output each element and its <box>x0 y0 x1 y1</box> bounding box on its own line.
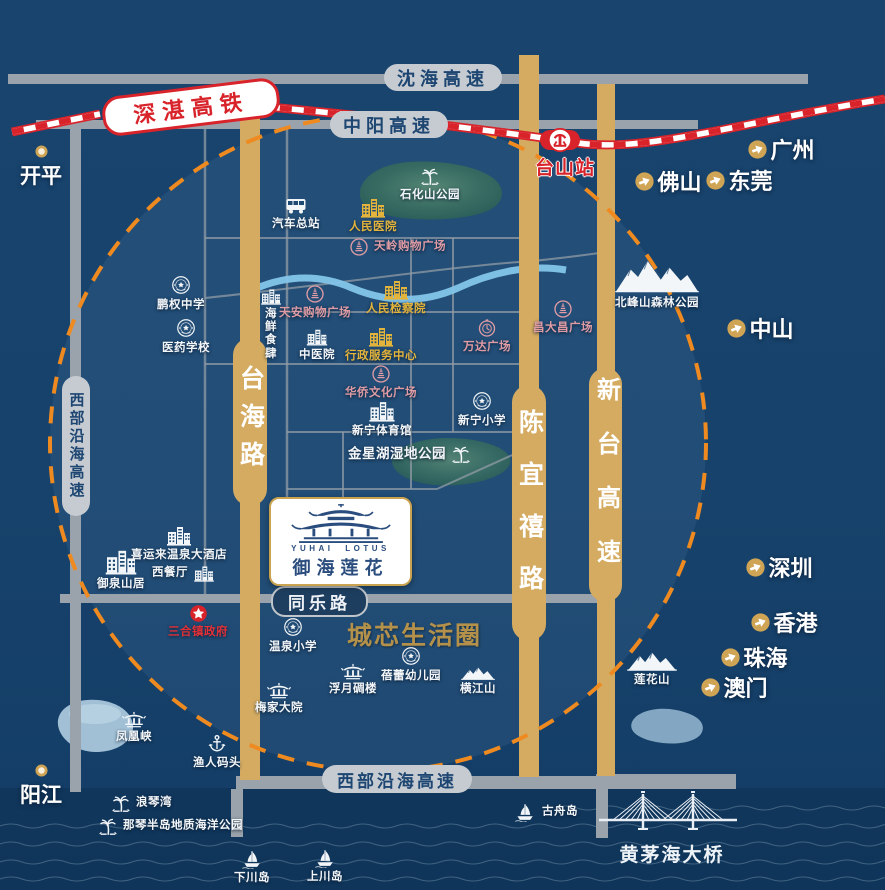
mall-icon <box>349 237 369 257</box>
poi-label: 西餐厅 <box>152 566 188 579</box>
sea-area <box>0 788 885 890</box>
poi-label: 那琴半岛地质海洋公园 <box>123 819 243 832</box>
arrow-circle-icon <box>635 172 654 191</box>
building-icon <box>260 287 282 305</box>
sailboat-icon <box>240 850 264 869</box>
poi-label: 新宁体育馆 <box>352 425 412 438</box>
poi-label: 横江山 <box>460 683 496 696</box>
arrow-circle-icon <box>701 678 720 697</box>
poi-label: 中医院 <box>299 349 335 362</box>
bridge-label: 黄茅海大桥 <box>607 840 737 867</box>
poi-label: 人民医院 <box>349 221 397 234</box>
seal-icon <box>282 616 304 638</box>
road-label-text: 西部沿海高速 <box>66 392 87 500</box>
mountain-icon <box>461 665 495 680</box>
city-label: 开平 <box>20 160 62 190</box>
poi-label: 天岭购物广场 <box>374 240 446 253</box>
poi-label: 上川岛 <box>307 871 343 884</box>
poi-label: 北峰山森林公园 <box>615 297 699 310</box>
poi-label: 医药学校 <box>162 342 210 355</box>
location-map: 沈海高速 中阳高速 西部沿海高速 同乐路 西部沿海高速 台海路 陈宜禧路 新台高… <box>0 0 885 890</box>
arrow-circle-icon <box>706 171 725 190</box>
mall-icon <box>371 364 391 384</box>
poi-label: 莲花山 <box>634 674 670 687</box>
bus-icon <box>285 196 307 215</box>
sea-waves <box>0 806 885 881</box>
poi-label: 行政服务中心 <box>345 350 417 363</box>
mountain-lg-icon <box>613 258 701 294</box>
city-label: 深圳 <box>769 551 813 583</box>
poi-label: 下川岛 <box>234 872 270 885</box>
road-label-taihai: 台海路 <box>233 338 267 506</box>
seal-icon <box>400 645 422 667</box>
mountain-icon <box>626 649 678 671</box>
building-icon <box>368 399 396 422</box>
poi-label: 古舟岛 <box>542 805 578 818</box>
pagoda-icon <box>122 711 146 728</box>
poi-label: 人民检察院 <box>366 303 426 316</box>
seal-icon <box>471 390 493 412</box>
poi-label: 海鲜 食肆 <box>265 308 277 361</box>
road-label-text: 新台高速 <box>594 377 618 593</box>
ring-marker-icon <box>35 764 48 777</box>
station-label: 台山站 <box>534 153 596 180</box>
poi-label: 凤凰峡 <box>116 731 152 744</box>
building-icon <box>306 327 328 346</box>
arrow-circle-icon <box>748 140 767 159</box>
poi-label: 御泉山居 <box>97 578 145 591</box>
poi-label: 浮月碉楼 <box>329 683 377 696</box>
pagoda-icon <box>267 682 291 699</box>
sailboat-icon <box>313 849 337 868</box>
poi-label: 温泉小学 <box>269 641 317 654</box>
china-railway-icon <box>547 127 573 153</box>
building-icon <box>383 278 409 300</box>
city-label: 东莞 <box>729 164 773 196</box>
road-label-chenyixi: 陈宜禧路 <box>512 385 546 641</box>
poi-label: 天安购物广场 <box>279 307 351 320</box>
building-icon <box>193 564 215 582</box>
city-label: 珠海 <box>744 641 788 673</box>
road-label-text: 陈宜禧路 <box>517 409 542 617</box>
seal-icon <box>170 274 192 296</box>
poi-label: 万达广场 <box>463 341 511 354</box>
city-label: 佛山 <box>658 165 702 197</box>
road-stub-bridge <box>596 774 736 785</box>
arrow-circle-icon <box>721 648 740 667</box>
building-icon <box>360 196 386 218</box>
huangmaohai-bridge-icon <box>597 789 739 837</box>
poi-label: 渔人码头 <box>193 757 241 770</box>
arrow-circle-icon <box>727 319 746 338</box>
poi-label: 浪琴湾 <box>136 796 172 809</box>
poi-label: 金星湖湿地公园 <box>348 446 446 462</box>
project-logo-card: YUHAI LOTUS 御海莲花 <box>269 497 412 586</box>
poi-label: 昌大昌广场 <box>533 322 593 335</box>
road-label-shenhai-expressway: 沈海高速 <box>384 64 502 91</box>
road-label-text: 台海路 <box>238 365 263 479</box>
logo-name-en: YUHAI LOTUS <box>291 544 390 553</box>
city-label: 阳江 <box>20 779 62 809</box>
ring-marker-icon <box>35 145 48 158</box>
city-label: 香港 <box>774 606 818 638</box>
road-label-zhongyang-expressway: 中阳高速 <box>330 111 448 138</box>
poi-label: 石化山公园 <box>400 189 460 202</box>
building-icon <box>166 524 192 546</box>
mall-icon <box>553 299 573 319</box>
sailboat-icon <box>513 803 537 822</box>
poi-label: 蓓蕾幼儿园 <box>381 670 441 683</box>
mall-icon <box>305 284 325 304</box>
arrow-circle-icon <box>746 558 765 577</box>
pavilion-icon <box>288 503 394 543</box>
anchor-icon <box>207 734 227 754</box>
clock-icon <box>477 318 497 338</box>
poi-label: 三合镇政府 <box>168 626 228 639</box>
road-label-west-coastal-bottom: 西部沿海高速 <box>322 765 472 793</box>
road-label-xintai-expressway: 新台高速 <box>589 368 622 602</box>
pagoda-icon <box>341 663 365 680</box>
palm-icon <box>420 166 440 186</box>
palm-icon <box>451 444 471 464</box>
palm-icon <box>111 793 131 813</box>
poi-label: 梅家大院 <box>255 702 303 715</box>
road-label-tongle: 同乐路 <box>271 586 368 617</box>
arrow-circle-icon <box>751 613 770 632</box>
poi-label: 喜运来温泉大酒店 <box>131 549 227 562</box>
poi-label: 鹏权中学 <box>157 299 205 312</box>
logo-name-cn: 御海莲花 <box>293 554 389 580</box>
poi-label: 新宁小学 <box>458 415 506 428</box>
city-label: 广州 <box>771 133 815 165</box>
seal-icon <box>175 317 197 339</box>
poi-label: 汽车总站 <box>272 218 320 231</box>
star-icon <box>189 604 208 623</box>
road-label-west-coastal-left: 西部沿海高速 <box>62 376 90 516</box>
building-icon <box>104 547 138 575</box>
building-icon <box>368 325 394 347</box>
palm-icon <box>98 816 118 836</box>
city-label: 澳门 <box>724 671 768 703</box>
city-label: 中山 <box>750 312 794 344</box>
